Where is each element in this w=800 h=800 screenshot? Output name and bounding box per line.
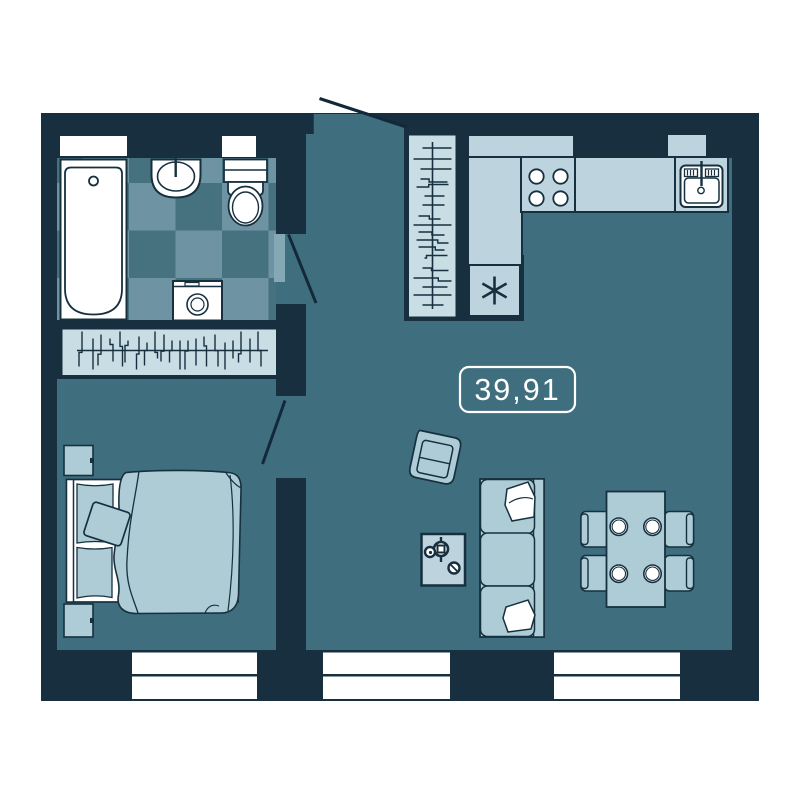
svg-text:39,91: 39,91 (474, 373, 560, 407)
